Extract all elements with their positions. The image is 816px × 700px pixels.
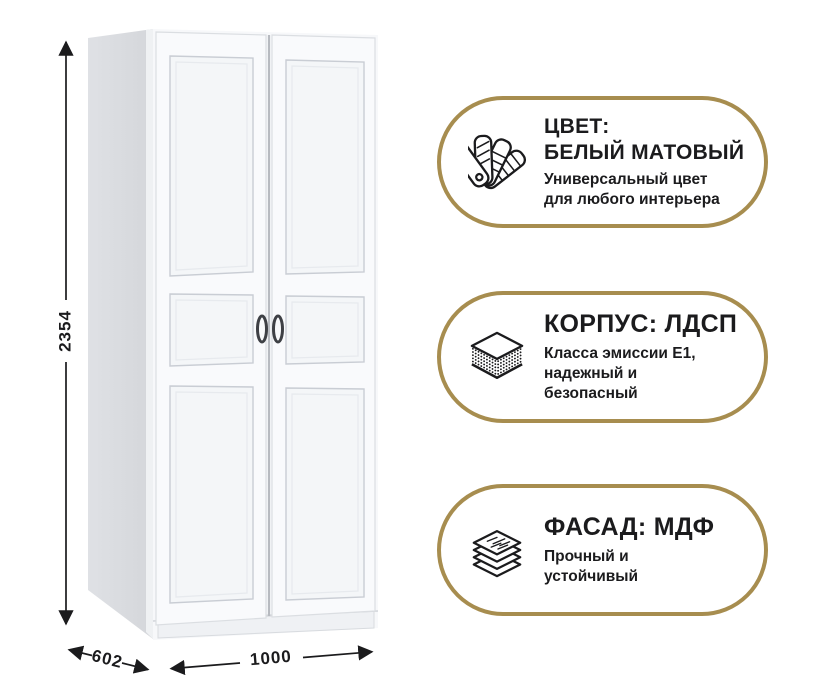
product-infographic: 2354 602 1000 xyxy=(0,0,816,700)
door-handle-right xyxy=(274,316,283,342)
left-door xyxy=(156,32,266,625)
width-dimension-line: 1000 xyxy=(171,647,372,670)
height-dimension-line: 2354 xyxy=(55,42,74,624)
badge-subtitle-line: безопасный xyxy=(544,384,737,404)
depth-dimension-line: 602 xyxy=(69,646,148,672)
badge-title-line: БЕЛЫЙ МАТОВЫЙ xyxy=(544,140,744,166)
wardrobe-body xyxy=(88,29,378,640)
mdf-stacked-sheets-icon xyxy=(466,521,528,579)
feature-badge-korpus: КОРПУС: ЛДСП Класса эмиссии Е1, надежный… xyxy=(437,291,768,423)
badge-title-line: ФАСАД: МДФ xyxy=(544,513,714,542)
chipboard-layers-icon xyxy=(466,329,528,385)
badge-subtitle-line: Прочный и xyxy=(544,547,714,567)
badge-title-line: ЦВЕТ: xyxy=(544,114,744,140)
height-dimension-label: 2354 xyxy=(55,310,74,352)
color-swatch-fan-icon xyxy=(466,130,528,194)
badge-subtitle-line: для любого интерьера xyxy=(544,190,744,210)
feature-badge-color: ЦВЕТ: БЕЛЫЙ МАТОВЫЙ Универсальный цвет д… xyxy=(437,96,768,228)
side-panel xyxy=(88,29,153,639)
door-handle-left xyxy=(258,316,267,342)
badge-subtitle-line: Универсальный цвет xyxy=(544,170,744,190)
depth-dimension-label: 602 xyxy=(90,646,125,672)
right-door xyxy=(272,35,375,617)
feature-badge-fasad: ФАСАД: МДФ Прочный и устойчивый xyxy=(437,484,768,616)
width-dimension-label: 1000 xyxy=(249,647,292,670)
side-panel-front-edge xyxy=(146,29,153,639)
badge-subtitle-line: устойчивый xyxy=(544,567,714,587)
badge-title-line: КОРПУС: ЛДСП xyxy=(544,310,737,339)
badge-subtitle-line: надежный и xyxy=(544,364,737,384)
wardrobe-illustration: 2354 602 1000 xyxy=(0,0,420,700)
badge-subtitle-line: Класса эмиссии Е1, xyxy=(544,344,737,364)
